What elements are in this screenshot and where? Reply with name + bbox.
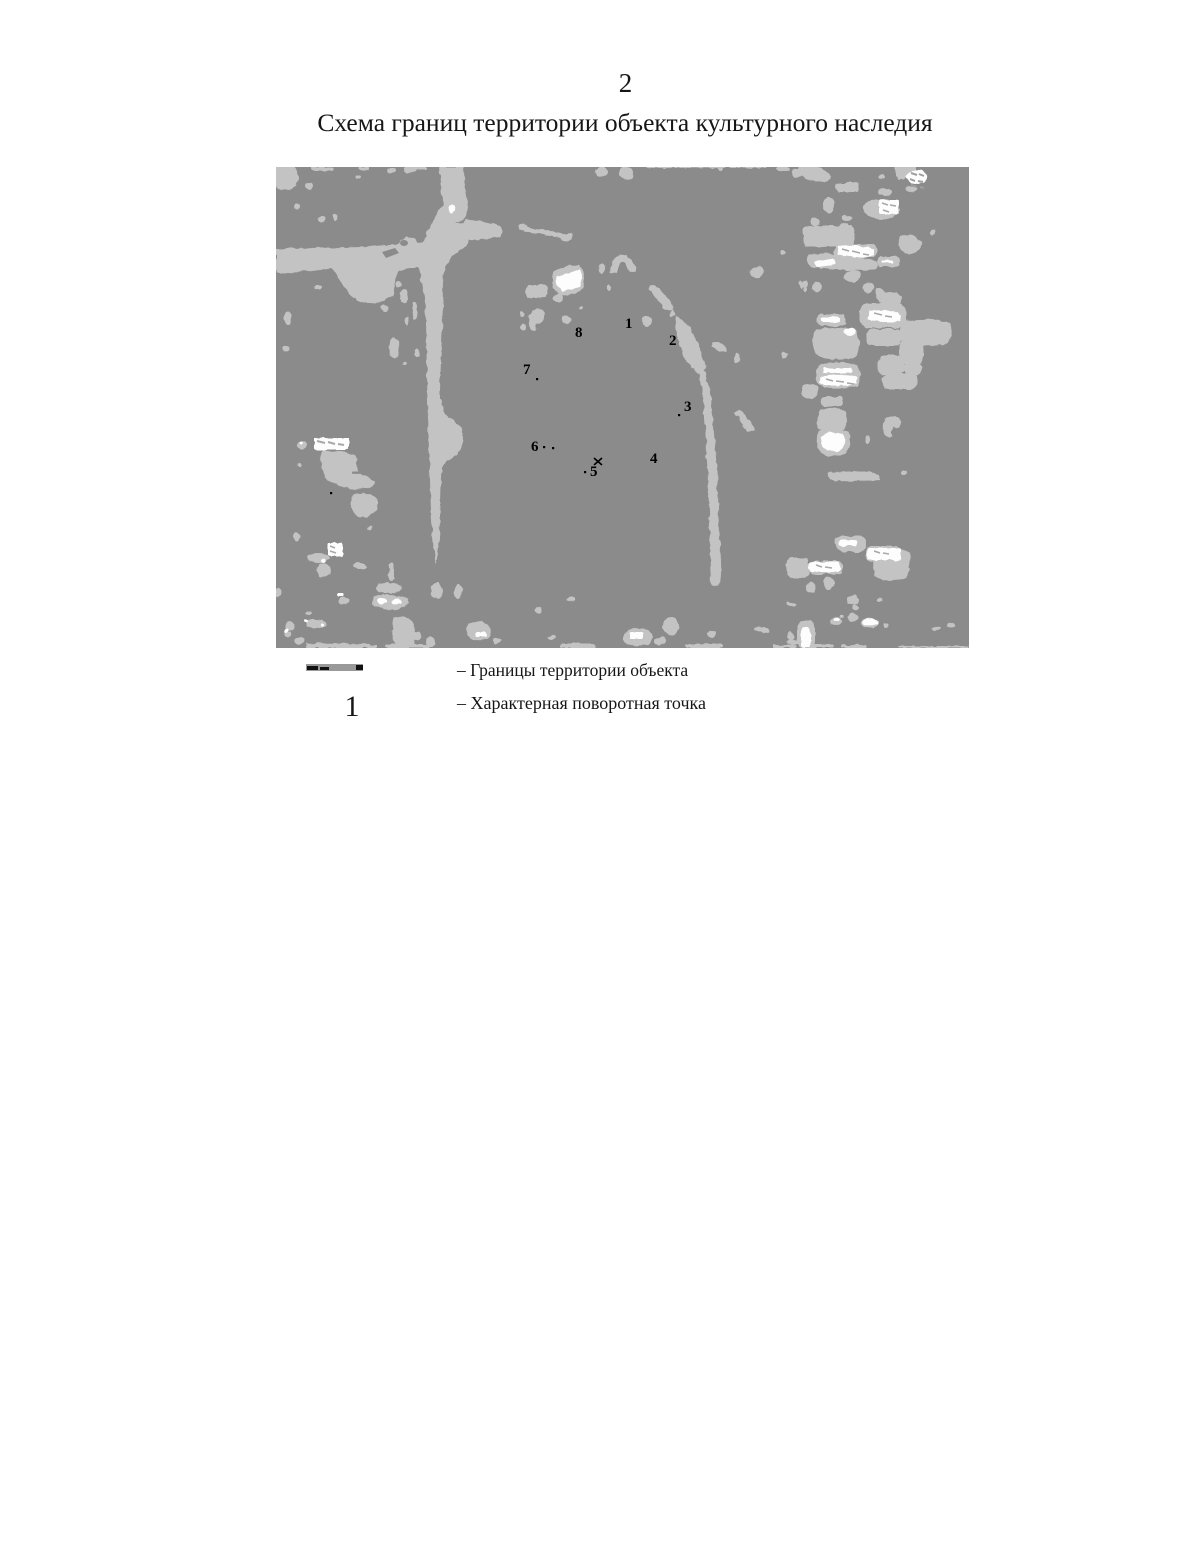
svg-text:8: 8: [575, 325, 583, 341]
svg-text:4: 4: [650, 451, 658, 467]
svg-text:6: 6: [531, 439, 539, 455]
svg-text:5: 5: [590, 464, 598, 480]
svg-text:1: 1: [625, 316, 633, 332]
svg-text:3: 3: [684, 399, 692, 415]
svg-text:7: 7: [523, 362, 531, 378]
svg-text:2: 2: [669, 333, 677, 349]
